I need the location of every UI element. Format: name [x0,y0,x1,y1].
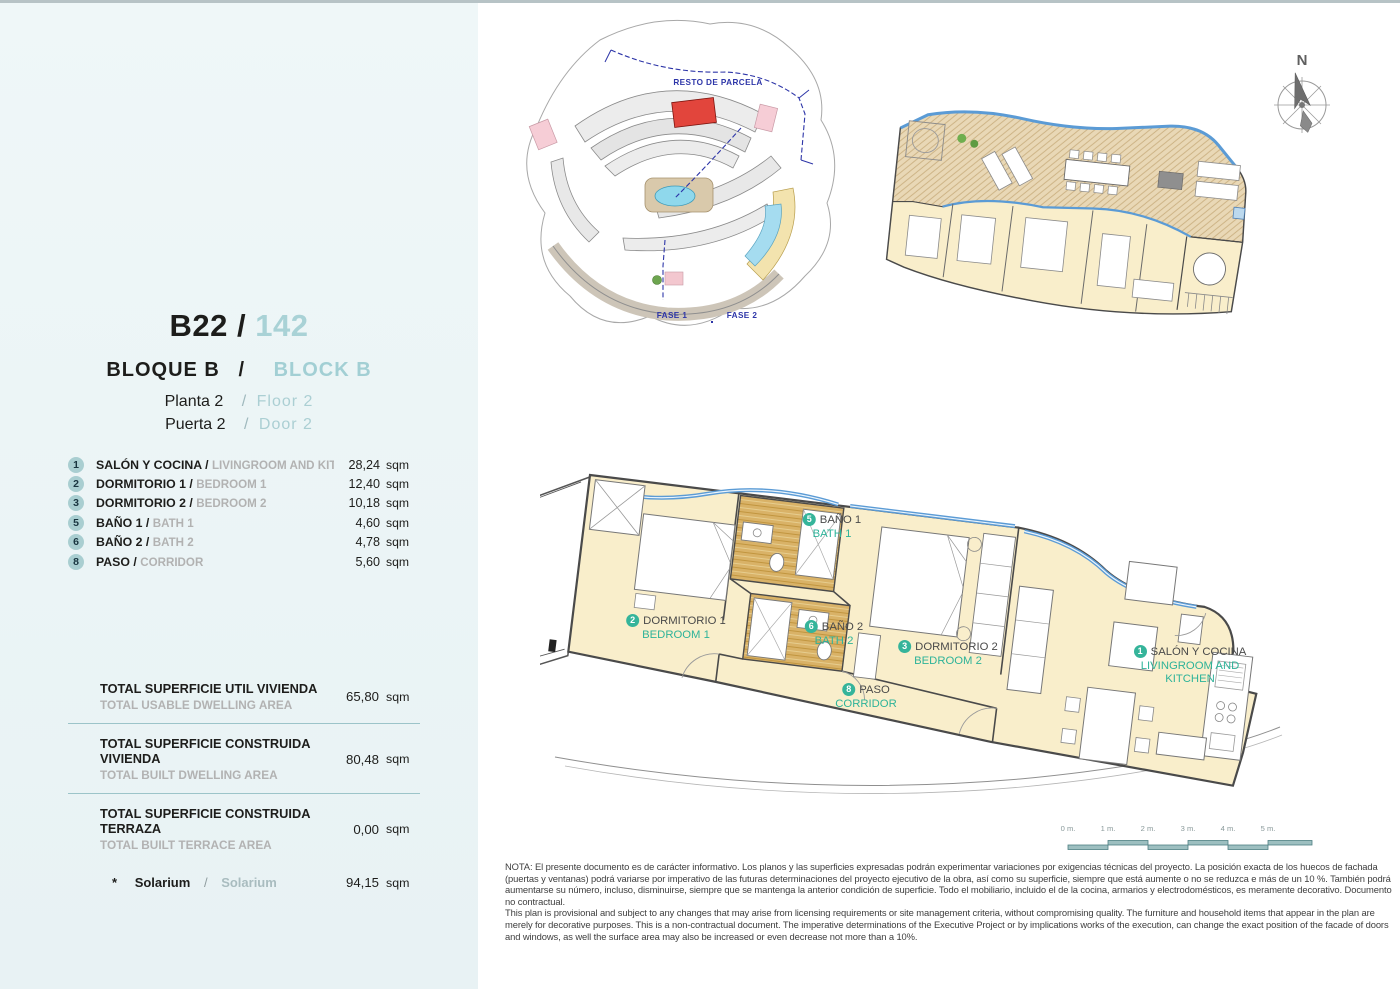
room-row: 1 SALÓN Y COCINA / LIVINGROOM AND KITCHE… [68,455,420,474]
plan-label-bath2: 6BAÑO 2 BATH 2 [805,620,863,648]
room-badge: 3 [898,640,911,653]
room-area-unit: sqm [380,477,420,491]
room-area-unit: sqm [380,496,420,510]
plan-label-corridor: 8PASO CORRIDOR [835,683,897,711]
totals-divider [68,723,420,724]
total-value: 65,80 [323,689,379,704]
solarium-label-es: Solarium [135,875,191,890]
compass: N [1267,52,1337,150]
door-es: Puerta 2 [165,416,225,433]
north-arrow [1287,71,1310,109]
unit-number: 142 [255,308,308,343]
solarium-row: * Solarium / Solarium 94,15 sqm [68,875,420,890]
room-name-en: BEDROOM 1 [196,478,266,491]
solarium-label-en: Solarium [221,875,277,890]
room-area-value: 28,24 [334,458,380,472]
room-number-badge: 5 [68,515,84,531]
room-row: 8 PASO / CORRIDOR 5,60 sqm [68,552,420,571]
room-number-badge: 3 [68,495,84,511]
room-name-es: PASO / [96,555,137,569]
highlighted-unit [672,98,717,128]
pink-patch-bottom [665,272,683,285]
wardrobe [589,480,645,536]
totals-section: TOTAL SUPERFICIE UTIL VIVIENDA TOTAL USA… [68,671,420,890]
solarium-separator: / [204,875,208,890]
door-en: Door 2 [259,416,313,433]
floor-plan-sheet: B22 / 142 BLOQUE B / BLOCK B Planta 2 / … [0,0,1400,989]
note-english: This plan is provisional and subject to … [505,907,1398,942]
scale-tick-label: 5 m. [1261,824,1276,833]
room-area-unit: sqm [380,516,420,530]
room-number-badge: 8 [68,554,84,570]
site-plan-fase2-label: FASE 2 [727,311,758,320]
room-name-en: LIVINGROOM AND KITCHEN [212,459,334,472]
info-sidebar: B22 / 142 BLOQUE B / BLOCK B Planta 2 / … [0,3,478,989]
room-area-unit: sqm [380,458,420,472]
room-name-es: BAÑO 1 / [96,516,149,530]
room-name-es: SALÓN Y COCINA / [96,458,209,472]
fase-separator-dot [711,321,713,323]
scale-tick-label: 3 m. [1181,824,1196,833]
plan-label-bath1: 5BAÑO 1 BATH 1 [803,513,861,541]
room-name-en: BATH 2 [153,536,194,549]
room-name-en: CORRIDOR [140,556,203,569]
floor-separator: / [242,393,246,410]
room-name-es: BAÑO 2 / [96,535,149,549]
plan-label-livingroom: 1SALÓN Y COCINA LIVINGROOM AND KITCHEN [1126,645,1254,687]
total-label-en: TOTAL BUILT TERRACE AREA [100,838,323,852]
unit-code: B22 / [170,308,247,343]
mini-bed [957,215,996,264]
room-badge: 5 [803,513,816,526]
green-dot [653,276,662,285]
floor-en: Floor 2 [257,393,314,410]
room-name-en: BATH 1 [153,517,194,530]
room-name-es: DORMITORIO 1 / [96,477,193,491]
legal-note: NOTA: El presente documento es de caráct… [505,861,1398,942]
room-number-badge: 2 [68,476,84,492]
plan-label-bedroom1: 2DORMITORIO 1 BEDROOM 1 [626,614,726,642]
small-plunge [1233,207,1245,219]
scale-tick-label: 4 m. [1221,824,1236,833]
door-line: Puerta 2 / Door 2 [0,416,478,434]
mini-bed [1021,218,1068,272]
total-value: 80,48 [323,752,379,767]
mini-kitchen [1132,279,1174,301]
floor-es: Planta 2 [165,393,224,410]
total-terrace-area: TOTAL SUPERFICIE CONSTRUIDA TERRAZA TOTA… [68,796,420,861]
room-area-list: 1 SALÓN Y COCINA / LIVINGROOM AND KITCHE… [68,455,420,571]
roof-unit [1158,171,1184,189]
site-plan-fase1-label: FASE 1 [657,311,688,320]
site-plan-drawing [505,8,850,343]
solarium-asterisk: * [112,875,117,890]
mini-bed [905,215,941,258]
room-area-value: 4,78 [334,535,380,549]
total-label-en: TOTAL USABLE DWELLING AREA [100,698,323,712]
room-area-value: 12,40 [334,477,380,491]
room-name-es: DORMITORIO 2 / [96,496,193,510]
solarium-unit: sqm [379,876,420,890]
room-area-unit: sqm [380,535,420,549]
block-name-es: BLOQUE B [106,359,220,381]
room-name-en: BEDROOM 2 [196,497,266,510]
pergola-spa [906,121,946,161]
room-row: 5 BAÑO 1 / BATH 1 4,60 sqm [68,513,420,532]
total-label-es: TOTAL SUPERFICIE CONSTRUIDA VIVIENDA [100,736,323,766]
scale-tick-label: 1 m. [1101,824,1116,833]
room-row: 3 DORMITORIO 2 / BEDROOM 2 10,18 sqm [68,494,420,513]
door-separator: / [244,416,248,433]
room-row: 6 BAÑO 2 / BATH 2 4,78 sqm [68,533,420,552]
room-area-value: 5,60 [334,555,380,569]
total-built-area: TOTAL SUPERFICIE CONSTRUIDA VIVIENDA TOT… [68,726,420,791]
room-badge: 2 [626,614,639,627]
room-area-unit: sqm [380,555,420,569]
total-label-es: TOTAL SUPERFICIE UTIL VIVIENDA [100,681,323,696]
plan-label-bedroom2: 3DORMITORIO 2 BEDROOM 2 [898,640,998,668]
floor-line: Planta 2 / Floor 2 [0,393,478,411]
room-area-value: 10,18 [334,496,380,510]
note-spanish: NOTA: El presente documento es de caráct… [505,861,1398,907]
block-separator: / [238,359,245,381]
site-plan-resto-label: RESTO DE PARCELA [673,78,762,87]
compass-rose [1267,67,1337,145]
totals-divider [68,793,420,794]
total-unit: sqm [379,752,420,766]
room-badge: 6 [805,620,818,633]
total-value: 0,00 [323,822,379,837]
room-number-badge: 1 [68,457,84,473]
total-usable-area: TOTAL SUPERFICIE UTIL VIVIENDA TOTAL USA… [68,671,420,721]
room-area-value: 4,60 [334,516,380,530]
total-label-es: TOTAL SUPERFICIE CONSTRUIDA TERRAZA [100,806,323,836]
block-line: BLOQUE B / BLOCK B [0,359,478,382]
total-unit: sqm [379,690,420,704]
scale-bar-graphic [1056,836,1316,852]
room-row: 2 DORMITORIO 1 / BEDROOM 1 12,40 sqm [68,474,420,493]
unit-title: B22 / 142 [0,308,478,344]
block-name-en: BLOCK B [274,359,372,381]
scale-tick-label: 2 m. [1141,824,1156,833]
solarium-plan-drawing [878,80,1282,332]
total-label-en: TOTAL BUILT DWELLING AREA [100,768,323,782]
room-number-badge: 6 [68,534,84,550]
mini-sofa [1097,234,1130,289]
room-badge: 1 [1134,645,1147,658]
room-badge: 8 [842,683,855,696]
pool [655,186,695,206]
total-unit: sqm [379,822,420,836]
scale-bar: 0 m. 1 m. 2 m. 3 m. 4 m. 5 m. [1056,824,1316,856]
solarium-value: 94,15 [323,875,379,890]
scale-tick-label: 0 m. [1061,824,1076,833]
